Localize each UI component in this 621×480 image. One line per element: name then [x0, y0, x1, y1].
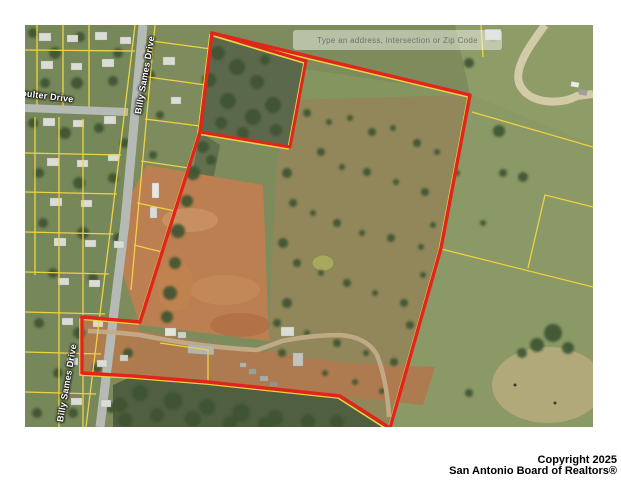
satellite-imagery — [25, 25, 593, 427]
pond — [312, 255, 334, 271]
map-search-watermark-text: Type an address, intersection or Zip Cod… — [317, 36, 478, 45]
copyright-notice: Copyright 2025 San Antonio Board of Real… — [449, 455, 617, 477]
map-search-watermark: Type an address, intersection or Zip Cod… — [293, 30, 502, 50]
page: Billy Sames Drive Billy Sames Drive oult… — [0, 0, 621, 480]
coulter-road — [25, 108, 128, 112]
aerial-map[interactable]: Billy Sames Drive Billy Sames Drive oult… — [25, 25, 593, 427]
copyright-line2: San Antonio Board of Realtors® — [449, 466, 617, 477]
